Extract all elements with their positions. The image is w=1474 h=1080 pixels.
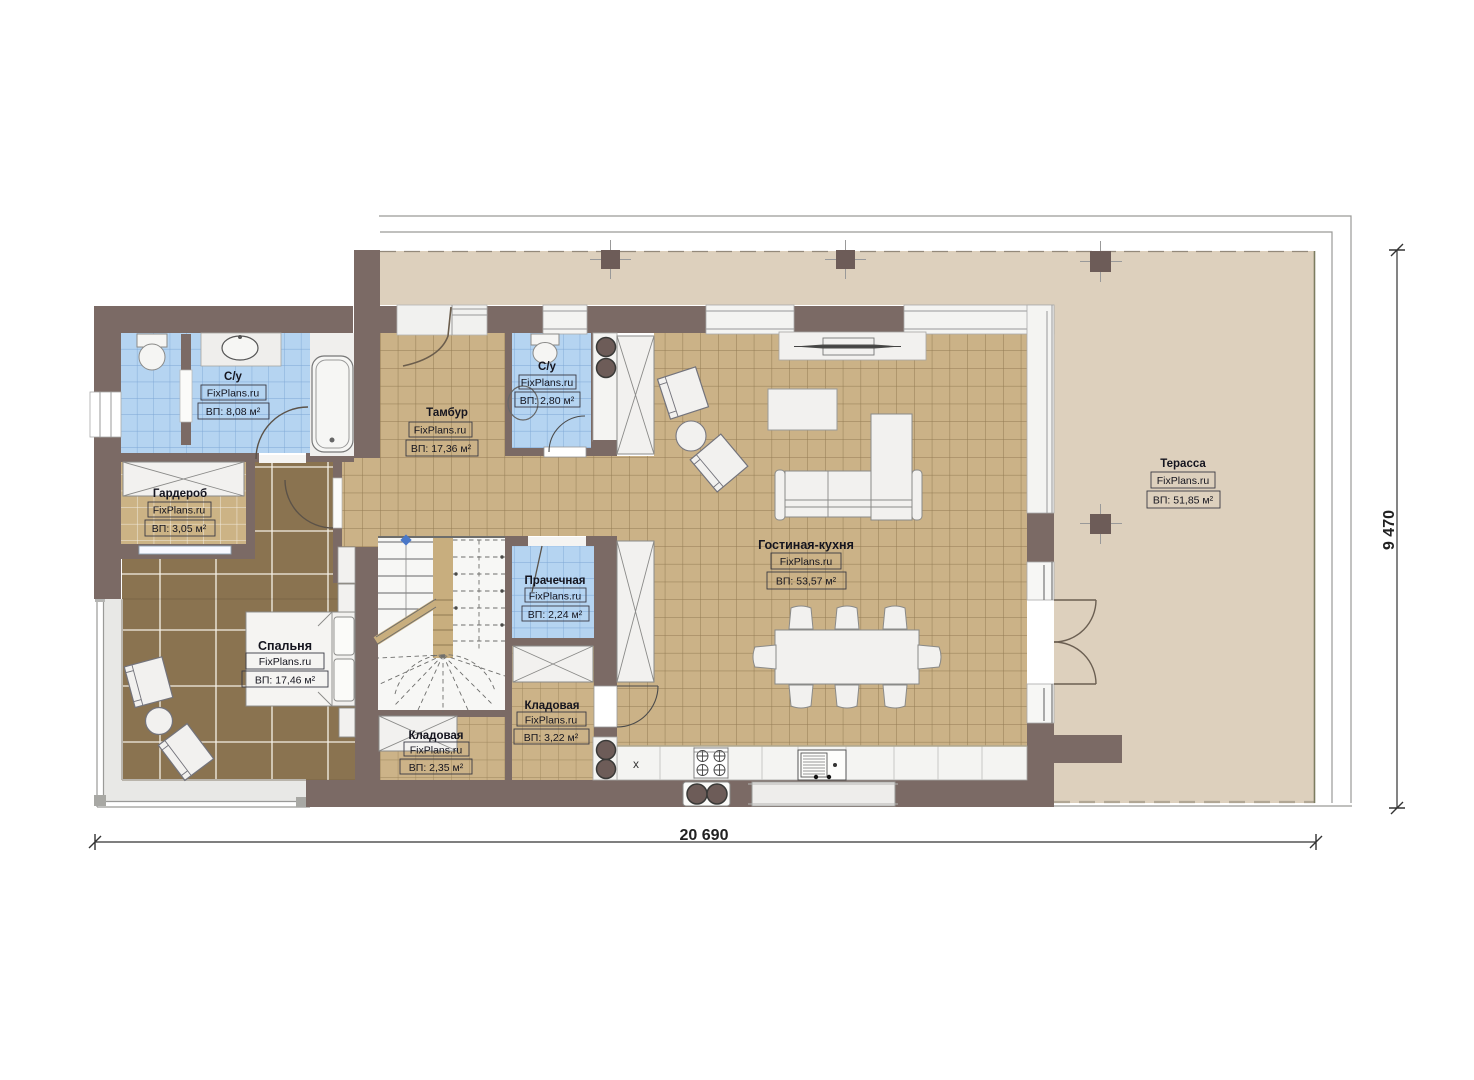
svg-text:Тамбур: Тамбур <box>426 407 468 419</box>
svg-text:ВП: 3,05 м²: ВП: 3,05 м² <box>152 523 207 535</box>
svg-text:ВП: 2,35 м²: ВП: 2,35 м² <box>409 762 464 774</box>
svg-text:ВП: 53,57 м²: ВП: 53,57 м² <box>776 576 837 588</box>
svg-text:Гостиная-кухня: Гостиная-кухня <box>758 538 854 552</box>
svg-text:FixPlans.ru: FixPlans.ru <box>521 377 574 389</box>
svg-text:FixPlans.ru: FixPlans.ru <box>529 591 582 603</box>
svg-text:Кладовая: Кладовая <box>524 700 579 712</box>
svg-text:ВП: 2,80 м²: ВП: 2,80 м² <box>520 395 575 407</box>
svg-text:FixPlans.ru: FixPlans.ru <box>780 556 833 568</box>
svg-text:С/у: С/у <box>224 371 243 383</box>
svg-text:Гардероб: Гардероб <box>153 488 207 500</box>
svg-text:Кладовая: Кладовая <box>408 730 463 742</box>
svg-text:ВП: 3,22 м²: ВП: 3,22 м² <box>524 732 579 744</box>
svg-text:FixPlans.ru: FixPlans.ru <box>414 425 467 437</box>
svg-text:FixPlans.ru: FixPlans.ru <box>525 715 578 727</box>
svg-text:Спальня: Спальня <box>258 639 312 653</box>
svg-text:x: x <box>633 757 639 771</box>
svg-text:С/у: С/у <box>538 361 557 373</box>
svg-text:FixPlans.ru: FixPlans.ru <box>207 388 260 400</box>
svg-text:ВП: 8,08 м²: ВП: 8,08 м² <box>206 406 261 418</box>
svg-text:FixPlans.ru: FixPlans.ru <box>153 505 206 517</box>
svg-text:ВП: 17,36 м²: ВП: 17,36 м² <box>411 443 472 455</box>
svg-text:Прачечная: Прачечная <box>525 575 586 587</box>
svg-text:ВП: 51,85 м²: ВП: 51,85 м² <box>1153 495 1214 507</box>
svg-text:FixPlans.ru: FixPlans.ru <box>410 745 463 757</box>
svg-text:ВП: 17,46 м²: ВП: 17,46 м² <box>255 675 316 687</box>
svg-text:FixPlans.ru: FixPlans.ru <box>259 656 312 668</box>
svg-text:FixPlans.ru: FixPlans.ru <box>1157 475 1210 487</box>
svg-text:9 470: 9 470 <box>1381 510 1398 550</box>
svg-text:Терасса: Терасса <box>1160 458 1206 470</box>
svg-text:ВП: 2,24 м²: ВП: 2,24 м² <box>528 609 583 621</box>
svg-text:20 690: 20 690 <box>680 827 729 844</box>
